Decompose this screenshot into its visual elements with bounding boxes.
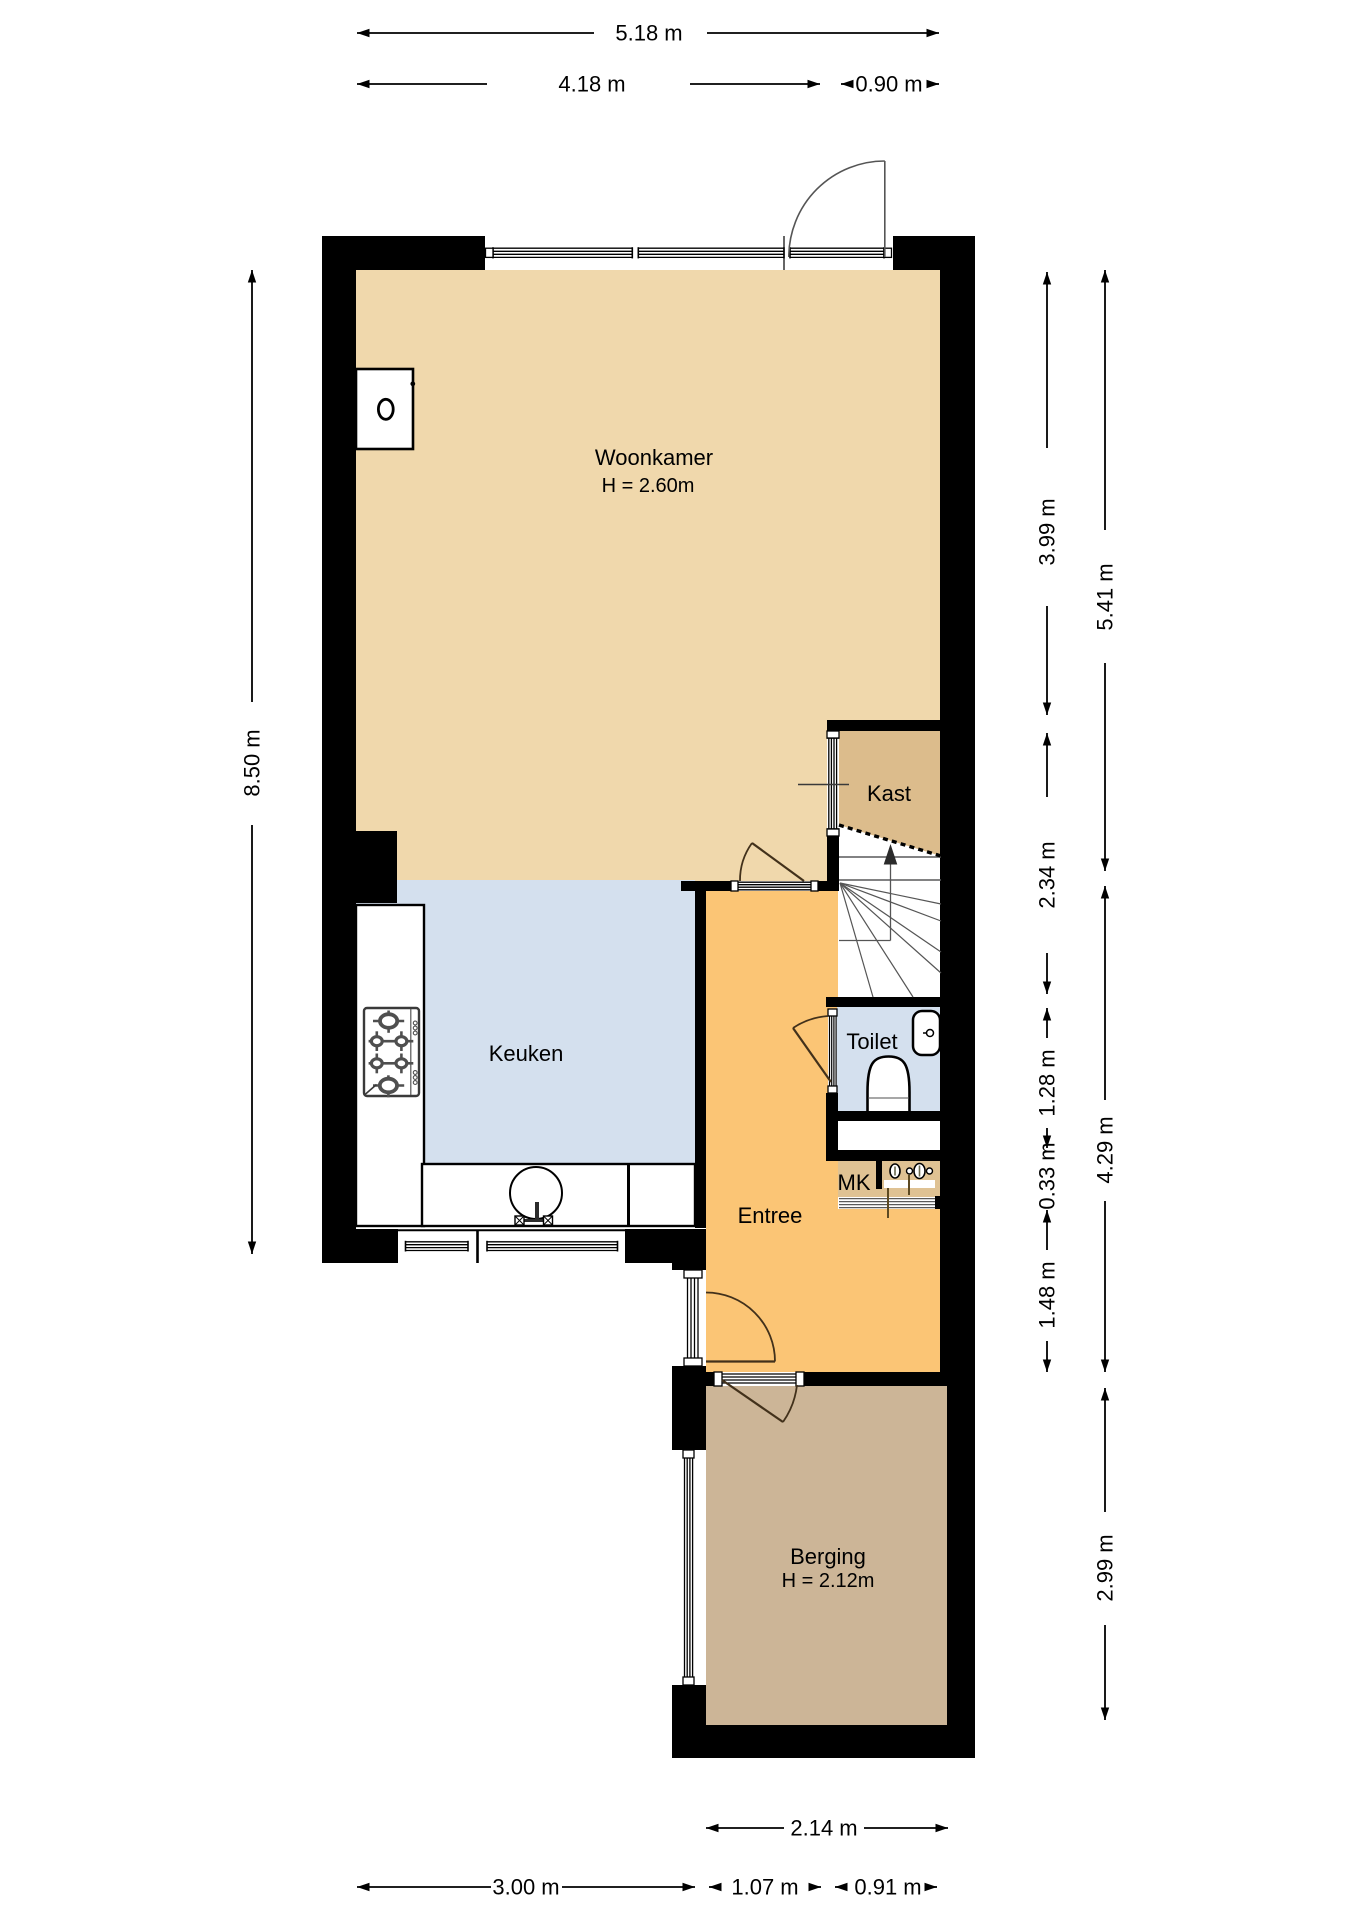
svg-text:Woonkamer: Woonkamer — [595, 445, 713, 470]
svg-text:H = 2.12m: H = 2.12m — [782, 1570, 875, 1592]
svg-text:1.48 m: 1.48 m — [1035, 1261, 1060, 1328]
svg-text:0.33 m: 0.33 m — [1035, 1142, 1060, 1209]
svg-text:2.34 m: 2.34 m — [1035, 841, 1060, 908]
svg-text:1.28 m: 1.28 m — [1035, 1049, 1060, 1116]
svg-text:3.00 m: 3.00 m — [492, 1875, 559, 1900]
svg-text:5.41 m: 5.41 m — [1093, 563, 1118, 630]
svg-text:Keuken: Keuken — [489, 1041, 564, 1066]
svg-text:5.18 m: 5.18 m — [615, 21, 682, 46]
svg-text:3.99 m: 3.99 m — [1035, 498, 1060, 565]
svg-text:2.99 m: 2.99 m — [1093, 1534, 1118, 1601]
svg-text:0.91 m: 0.91 m — [854, 1875, 921, 1900]
svg-text:Kast: Kast — [867, 781, 911, 806]
svg-text:8.50 m: 8.50 m — [240, 729, 265, 796]
svg-text:4.18 m: 4.18 m — [558, 72, 625, 97]
svg-text:Berging: Berging — [790, 1544, 866, 1569]
svg-text:2.14 m: 2.14 m — [790, 1816, 857, 1841]
svg-text:H = 2.60m: H = 2.60m — [602, 475, 695, 497]
svg-text:MK: MK — [838, 1170, 871, 1195]
svg-text:4.29 m: 4.29 m — [1093, 1116, 1118, 1183]
svg-text:0.90 m: 0.90 m — [855, 72, 922, 97]
svg-text:Toilet: Toilet — [846, 1029, 897, 1054]
svg-text:Entree: Entree — [738, 1203, 803, 1228]
svg-text:1.07 m: 1.07 m — [731, 1875, 798, 1900]
